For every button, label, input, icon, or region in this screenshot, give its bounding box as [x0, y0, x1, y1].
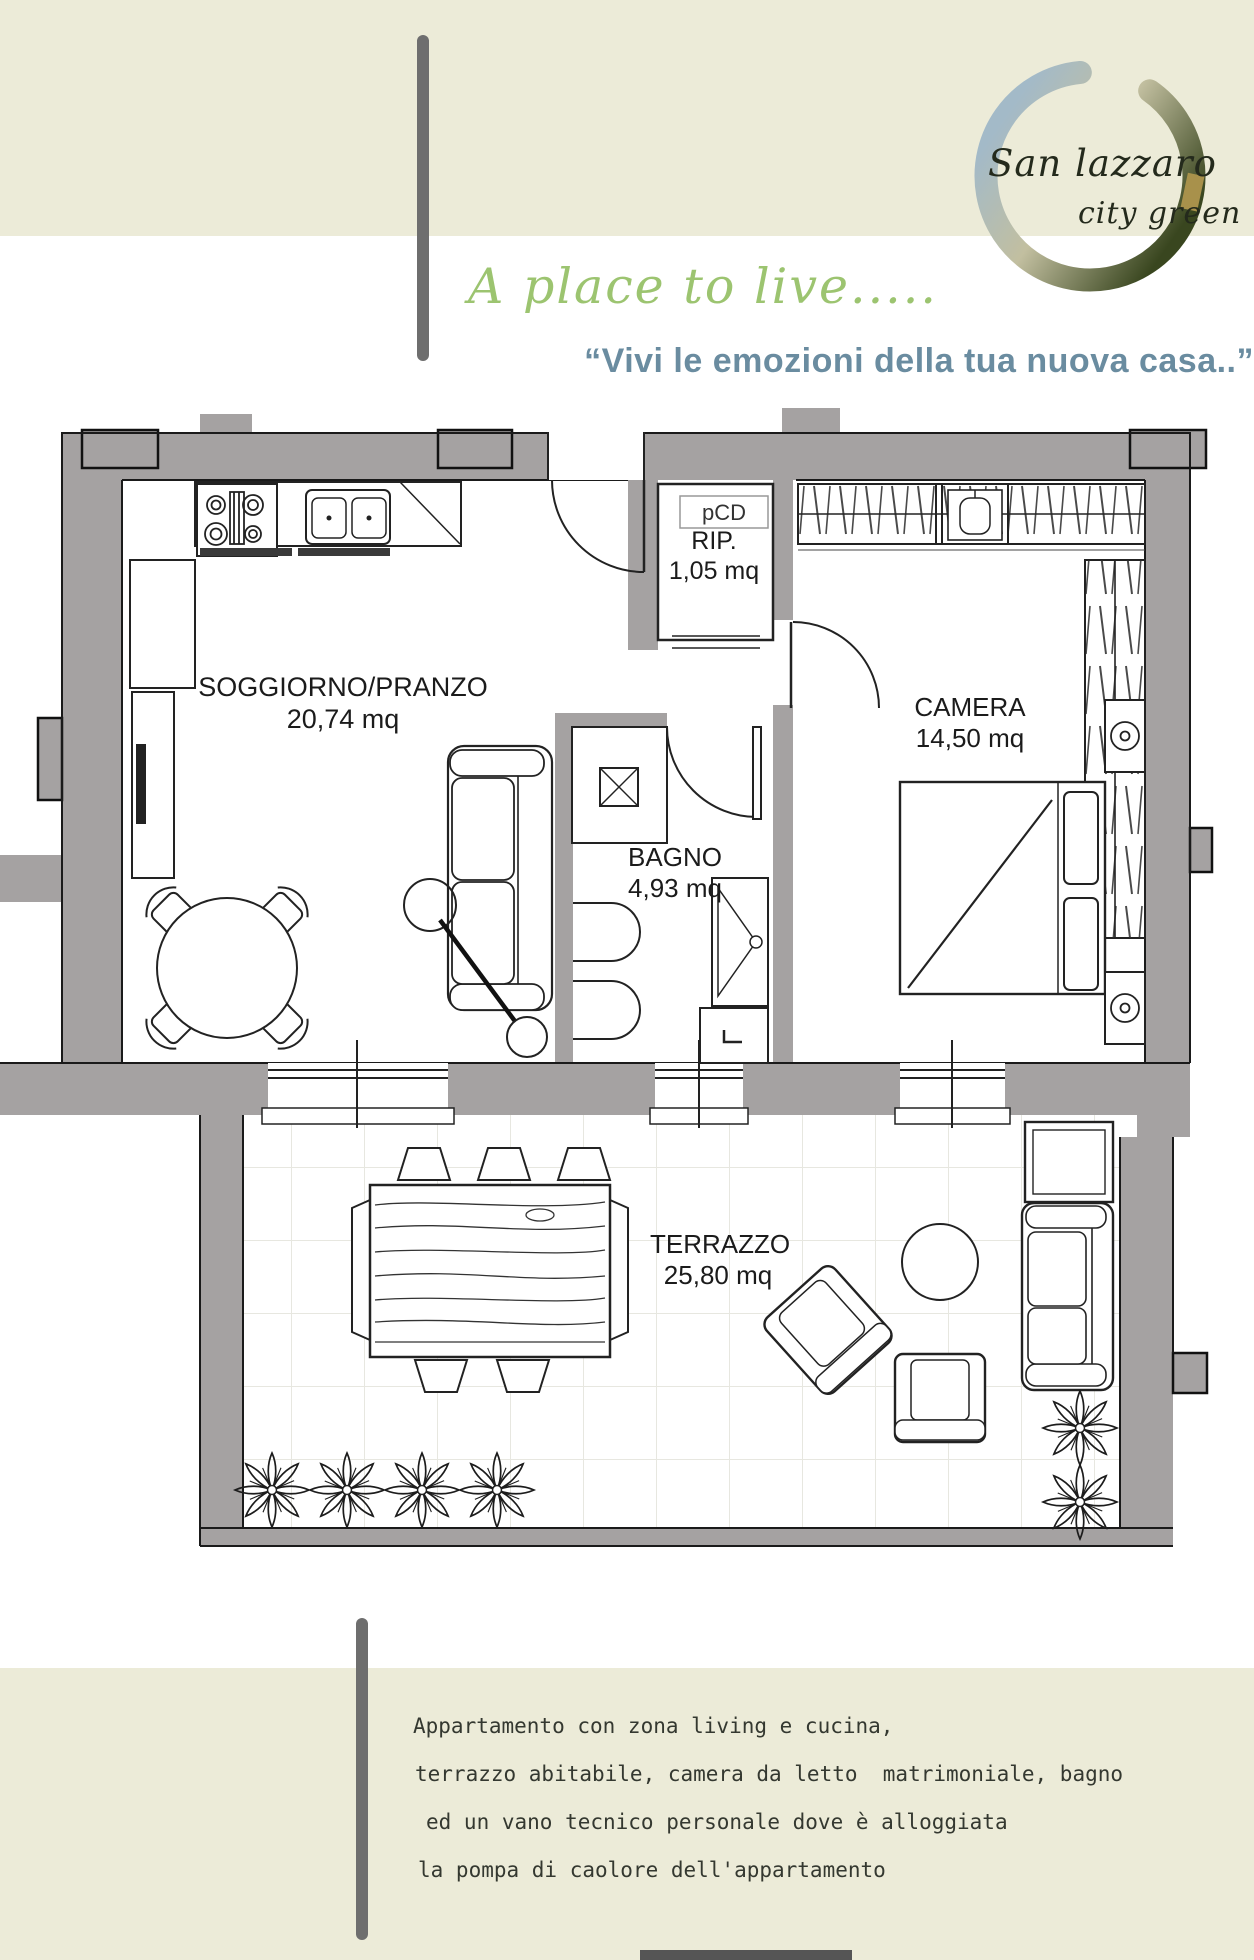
room-area: 20,74 mq: [193, 704, 493, 736]
description-line-1: Appartamento con zona living e cucina,: [413, 1714, 893, 1738]
pcd-label: pCD: [680, 500, 768, 526]
nightstand-bottom: [1105, 972, 1145, 1044]
room-name: RIP.: [652, 527, 776, 557]
room-label-bagno: BAGNO 4,93 mq: [605, 842, 745, 903]
terrace-table: [352, 1148, 628, 1392]
terrace-coffee-table: [902, 1224, 978, 1300]
room-area: 25,80 mq: [650, 1260, 786, 1291]
wardrobe-top: [798, 484, 1145, 550]
room-label-terrazzo: TERRAZZO 25,80 mq: [650, 1229, 786, 1290]
room-label-soggiorno: SOGGIORNO/PRANZO 20,74 mq: [193, 672, 493, 736]
bottom-edge-sliver: [640, 1950, 852, 1960]
bedroom-door: [773, 620, 879, 708]
kitchen-counter: [195, 482, 461, 556]
room-label-camera: CAMERA 14,50 mq: [900, 692, 1040, 753]
shower: [572, 727, 667, 843]
room-name: SOGGIORNO/PRANZO: [193, 672, 493, 704]
tall-cabinet: [130, 560, 195, 688]
room-name: BAGNO: [605, 842, 745, 873]
nightstand-top: [1105, 700, 1145, 772]
bidet: [573, 981, 640, 1039]
terrace-storage-box: [1025, 1122, 1113, 1202]
kitchen-sink: [306, 490, 390, 544]
description-line-3: ed un vano tecnico personale dove è allo…: [426, 1810, 1008, 1834]
terrace-armchair: [895, 1354, 985, 1442]
room-area: 14,50 mq: [900, 723, 1040, 754]
description-line-4: la pompa di caolore dell'appartamento: [418, 1858, 886, 1882]
room-name: TERRAZZO: [650, 1229, 786, 1260]
dining-table: [139, 880, 314, 1055]
room-label-rip: RIP. 1,05 mq: [652, 527, 776, 586]
room-area: 1,05 mq: [652, 557, 776, 587]
boiler-unit: [700, 1008, 768, 1063]
bathroom-door: [667, 727, 761, 819]
sofa: [448, 746, 552, 1010]
bed: [900, 782, 1105, 994]
tv-sideboard: [132, 692, 174, 878]
terrace-sofa: [1022, 1203, 1113, 1390]
wc: [573, 903, 640, 961]
room-name: CAMERA: [900, 692, 1040, 723]
description-line-2: terrazzo abitabile, camera da letto matr…: [415, 1762, 1123, 1786]
floorplan: [0, 0, 1254, 1960]
room-area: 4,93 mq: [605, 873, 745, 904]
